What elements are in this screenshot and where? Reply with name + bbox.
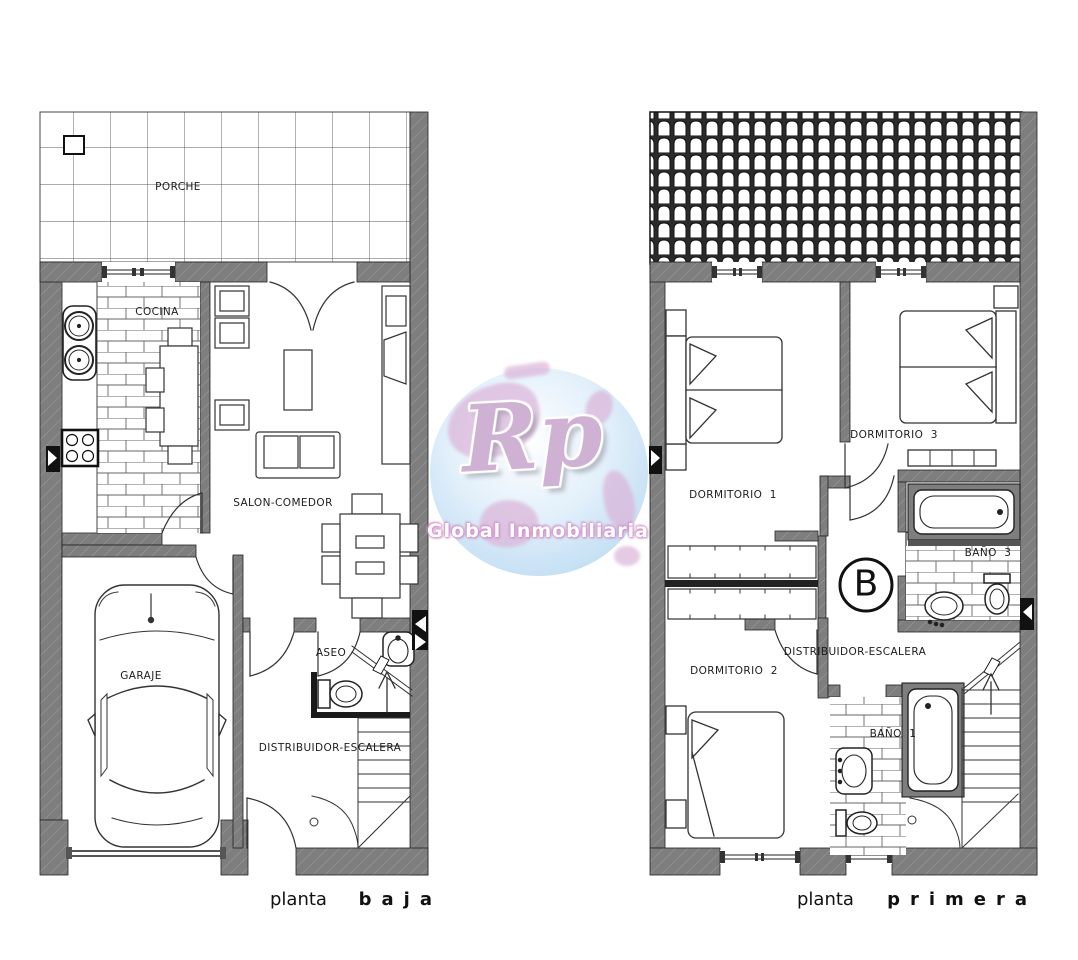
sofa-icon xyxy=(256,432,340,478)
floorplan-page: PORCHE COCINA SALON-COMEDOR GARAJE ASEO … xyxy=(0,0,1078,960)
car-icon xyxy=(88,585,226,847)
entrance-double-door xyxy=(270,282,354,330)
ground-floor-plan xyxy=(40,112,428,875)
bathroom1-area xyxy=(830,683,964,855)
wc-label: ASEO xyxy=(316,647,346,659)
living-room-door xyxy=(250,632,294,676)
armchair-icon xyxy=(215,286,249,430)
washbasin-icon xyxy=(836,748,872,794)
stair-block-letter: B xyxy=(854,564,879,605)
watermark-brand-name: Global Inmobiliaria xyxy=(418,520,658,542)
living-room-label: SALON-COMEDOR xyxy=(233,497,333,509)
ground-title-prefix: planta xyxy=(270,889,327,910)
living-room-area xyxy=(215,286,418,676)
porch-area xyxy=(40,112,410,262)
kitchen-area xyxy=(62,282,202,533)
watermark-blob xyxy=(614,546,640,566)
watermark-initials: Rp xyxy=(430,385,635,487)
dresser-icon xyxy=(908,450,996,466)
bedroom1-label: DORMITORIO 1 xyxy=(689,489,777,501)
kitchen-sink-icon xyxy=(63,306,96,380)
agency-watermark: Rp Global Inmobiliaria xyxy=(418,350,658,586)
ground-title-name: baja xyxy=(359,889,442,910)
toilet-icon xyxy=(318,680,362,708)
bedroom2-label: DORMITORIO 2 xyxy=(690,665,778,677)
porch-post xyxy=(64,136,84,154)
stove-icon xyxy=(62,430,98,466)
garage-area xyxy=(88,557,233,847)
porch-label: PORCHE xyxy=(155,181,201,193)
coffee-table-icon xyxy=(284,350,312,410)
kitchen-window xyxy=(102,262,175,282)
bed-single-icon xyxy=(666,706,784,838)
toilet-icon xyxy=(984,574,1010,614)
bath3-label: BAÑO 3 xyxy=(965,547,1012,559)
first-title-name: primera xyxy=(887,889,1037,910)
garage-label: GARAJE xyxy=(120,670,162,682)
tv-unit-icon xyxy=(382,286,410,464)
bath1-label: BAÑO 1 xyxy=(870,728,917,740)
stair-up-arrow xyxy=(379,672,395,712)
bedroom3-label: DORMITORIO 3 xyxy=(850,429,938,441)
wc-area xyxy=(311,632,414,718)
bathtub-icon xyxy=(908,484,1020,540)
toilet-icon xyxy=(836,810,877,836)
kitchen-label: COCINA xyxy=(135,306,178,318)
wardrobes-icon xyxy=(665,546,818,619)
entrance-door xyxy=(247,798,296,848)
roof-area xyxy=(650,112,1022,264)
ground-floor-title: planta baja xyxy=(270,889,442,910)
first-title-prefix: planta xyxy=(797,889,854,910)
dining-table-icon xyxy=(322,494,418,618)
bedroom3-door xyxy=(850,476,894,520)
first-floor-title: planta primera xyxy=(797,889,1037,910)
hall-stairs-label-first: DISTRIBUIDOR-ESCALERA xyxy=(784,646,926,658)
bathtub-icon xyxy=(902,683,964,797)
stair-up-arrow xyxy=(983,674,999,714)
bedroom1-door xyxy=(845,444,888,488)
bed-double-icon xyxy=(666,310,782,470)
hall-stairs-label-ground: DISTRIBUIDOR-ESCALERA xyxy=(259,742,401,754)
garage-gate xyxy=(66,847,226,859)
